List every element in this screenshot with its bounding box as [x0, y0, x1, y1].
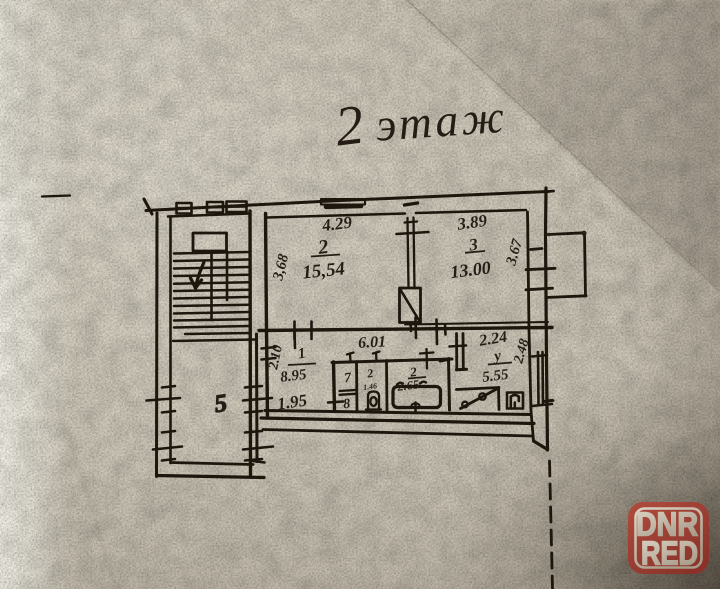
svg-text:RED: RED [641, 535, 698, 572]
svg-text:2.65: 2.65 [396, 377, 420, 394]
svg-text:этаж: этаж [374, 91, 508, 151]
svg-text:5.55: 5.55 [481, 367, 510, 386]
svg-text:6.01: 6.01 [358, 333, 387, 351]
svg-text:4.29: 4.29 [320, 213, 353, 236]
svg-text:8.95: 8.95 [279, 367, 308, 386]
svg-text:15,54: 15,54 [301, 258, 346, 283]
